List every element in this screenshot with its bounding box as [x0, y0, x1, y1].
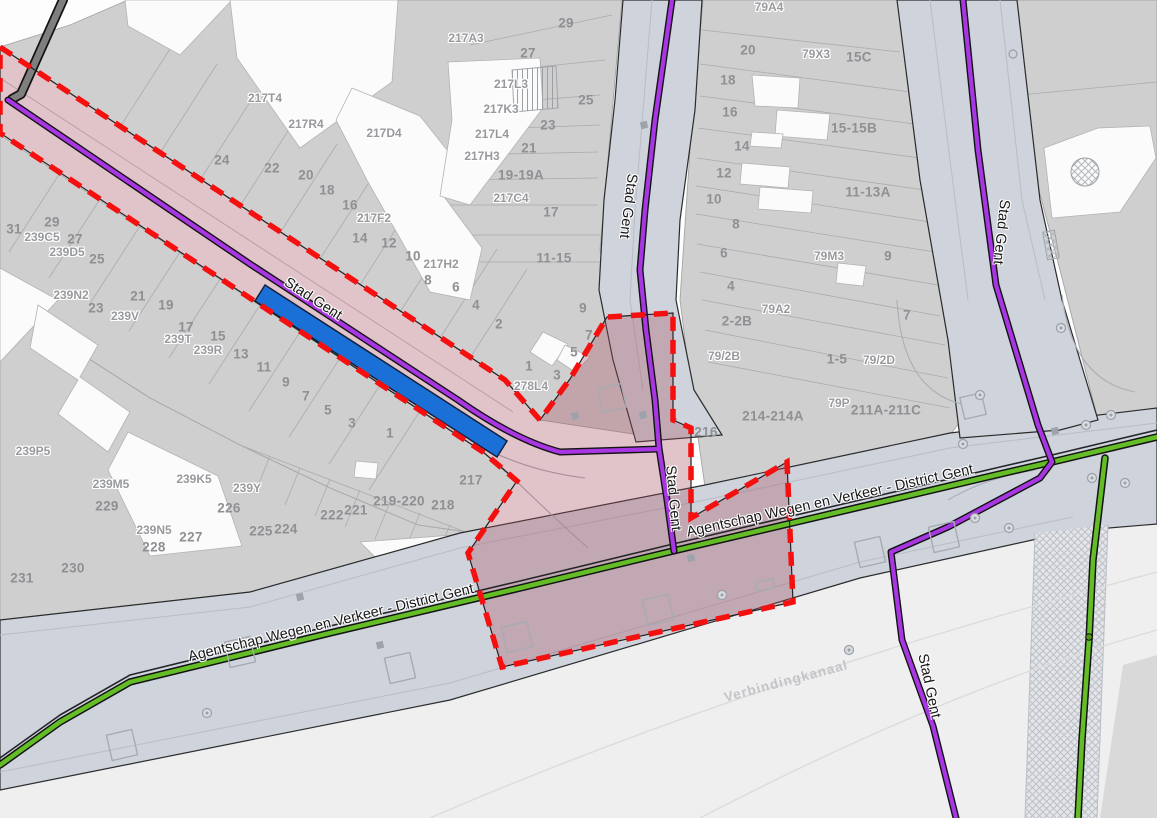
map-canvas[interactable]: 3129239C527239D525239N22321239V1917239T1… — [0, 0, 1157, 818]
basemap-svg — [0, 0, 1157, 818]
hatched-parcel — [512, 66, 558, 112]
hatched-circle-structure — [1071, 158, 1099, 186]
